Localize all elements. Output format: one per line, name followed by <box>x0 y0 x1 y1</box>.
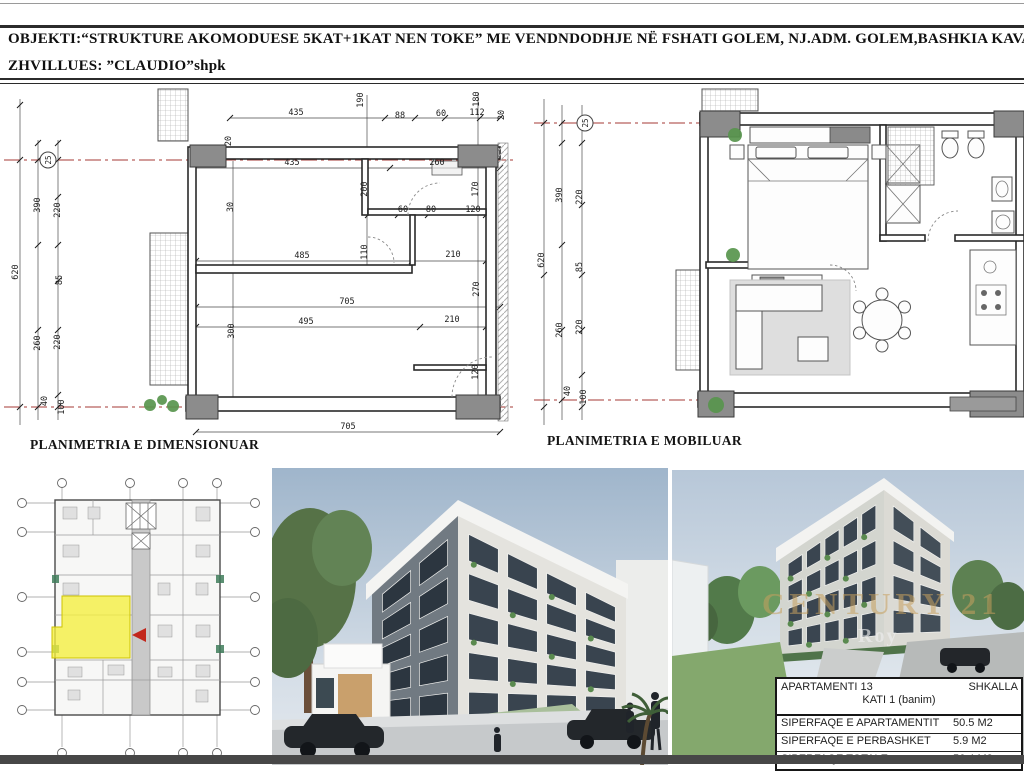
header-rule-top <box>0 25 1024 28</box>
svg-text:220: 220 <box>53 202 63 217</box>
bottom-bar <box>0 755 1024 764</box>
dimension-texts: 6203902208526022040100 <box>537 187 589 404</box>
stair-label: SHKALLA <box>968 681 1018 693</box>
developer-line: ZHVILLUES: ”CLAUDIO”shpk <box>8 58 226 75</box>
right-plan-title: PLANIMETRIA E MOBILUAR <box>547 433 742 449</box>
svg-text:170: 170 <box>471 181 481 196</box>
render-street-view <box>272 468 668 765</box>
svg-text:300: 300 <box>227 323 237 338</box>
living-room-furniture <box>730 280 911 375</box>
svg-text:200: 200 <box>360 181 370 196</box>
svg-text:85: 85 <box>575 262 585 272</box>
svg-text:180: 180 <box>472 91 482 106</box>
top-hairline <box>0 3 1024 4</box>
dimension-chain-lines <box>17 93 503 435</box>
svg-text:435: 435 <box>288 108 303 118</box>
axis-bubble: 25 <box>577 115 593 131</box>
walls <box>186 143 508 421</box>
svg-text:120: 120 <box>471 364 481 379</box>
svg-text:260: 260 <box>555 322 565 337</box>
svg-text:120: 120 <box>465 205 480 215</box>
small-house <box>312 644 390 722</box>
drawing-sheet: { "header": { "line1": "OBJEKTI:“STRUKTU… <box>0 0 1024 765</box>
table-header: APARTAMENTI 13 SHKALLA KATI 1 (banim) <box>777 679 1021 716</box>
svg-text:25: 25 <box>44 155 53 164</box>
svg-text:100: 100 <box>579 389 589 404</box>
svg-text:30: 30 <box>226 202 236 212</box>
svg-text:220: 220 <box>575 319 585 334</box>
svg-text:705: 705 <box>340 422 355 432</box>
svg-text:85: 85 <box>55 275 65 285</box>
axis-bubble: 25 <box>40 152 56 168</box>
table-row: SIPERFAQE E PERBASHKET 5.9 M2 <box>777 734 1021 752</box>
svg-text:112: 112 <box>469 108 484 118</box>
svg-text:25: 25 <box>581 118 590 127</box>
key-plan <box>8 475 268 763</box>
header-rule-bottom1 <box>0 78 1024 80</box>
svg-text:705: 705 <box>339 297 354 307</box>
apartment-id: APARTAMENTI 13 <box>781 681 873 693</box>
svg-text:270: 270 <box>472 281 482 296</box>
svg-text:60: 60 <box>436 109 446 119</box>
svg-text:190: 190 <box>356 92 366 107</box>
table-row: SIPERFAQE E APARTAMENTIT 50.5 M2 <box>777 716 1021 734</box>
svg-text:88: 88 <box>395 111 405 121</box>
svg-text:100: 100 <box>57 399 67 414</box>
row-label: SIPERFAQE E PERBASHKET <box>781 735 931 750</box>
svg-text:80: 80 <box>426 205 436 215</box>
dimension-texts: 4358860112435260608012048521070549521070… <box>11 91 507 432</box>
svg-text:20: 20 <box>497 110 507 120</box>
highlighted-apartment <box>52 596 130 658</box>
balconies <box>150 89 188 385</box>
svg-text:20: 20 <box>224 136 234 146</box>
svg-text:620: 620 <box>11 264 21 279</box>
sheet-title: OBJEKTI:“STRUKTURE AKOMODUESE 5KAT+1KAT … <box>8 31 1024 48</box>
svg-text:260: 260 <box>429 158 444 168</box>
svg-text:40: 40 <box>40 396 50 406</box>
corridor <box>132 500 150 715</box>
svg-text:110: 110 <box>360 244 370 259</box>
dimensioned-plan-drawing: 25 4358860112435260608012048521070549521… <box>0 85 530 440</box>
svg-text:495: 495 <box>298 317 313 327</box>
svg-text:390: 390 <box>33 197 43 212</box>
svg-text:220: 220 <box>53 334 63 349</box>
floor-label: KATI 1 (banim) <box>781 694 1017 706</box>
header-rule-bottom2 <box>0 83 1024 84</box>
row-value: 50.5 M2 <box>953 717 1017 732</box>
svg-text:390: 390 <box>555 187 565 202</box>
plant-symbol <box>144 395 179 412</box>
svg-text:435: 435 <box>284 158 299 168</box>
row-value: 5.9 M2 <box>953 735 1017 750</box>
svg-text:260: 260 <box>33 335 43 350</box>
svg-text:485: 485 <box>294 251 309 261</box>
svg-text:210: 210 <box>445 250 460 260</box>
svg-text:40: 40 <box>563 386 573 396</box>
row-label: SIPERFAQE E APARTAMENTIT <box>781 717 939 732</box>
svg-text:210: 210 <box>444 315 459 325</box>
svg-text:620: 620 <box>537 252 547 267</box>
svg-text:220: 220 <box>575 189 585 204</box>
left-plan-title: PLANIMETRIA E DIMENSIONUAR <box>30 437 259 453</box>
svg-text:60: 60 <box>398 205 408 215</box>
furnished-plan-drawing: 25 6203902208526022040100 <box>530 85 1024 440</box>
